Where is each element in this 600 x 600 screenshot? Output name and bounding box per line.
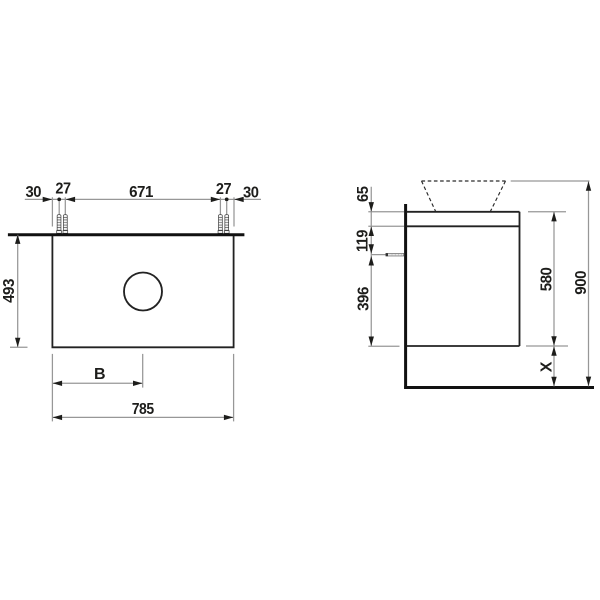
svg-text:493: 493 [1, 279, 18, 303]
svg-text:119: 119 [354, 229, 371, 252]
svg-text:900: 900 [573, 270, 590, 294]
svg-text:785: 785 [132, 401, 155, 418]
svg-text:B: B [94, 366, 105, 383]
svg-text:580: 580 [539, 267, 556, 291]
svg-text:27: 27 [216, 181, 232, 198]
svg-text:27: 27 [55, 181, 71, 198]
svg-text:X: X [539, 361, 556, 372]
svg-text:671: 671 [129, 184, 153, 201]
svg-text:396: 396 [355, 287, 372, 311]
svg-text:30: 30 [243, 184, 259, 201]
svg-text:65: 65 [355, 186, 372, 202]
svg-text:30: 30 [25, 184, 41, 201]
